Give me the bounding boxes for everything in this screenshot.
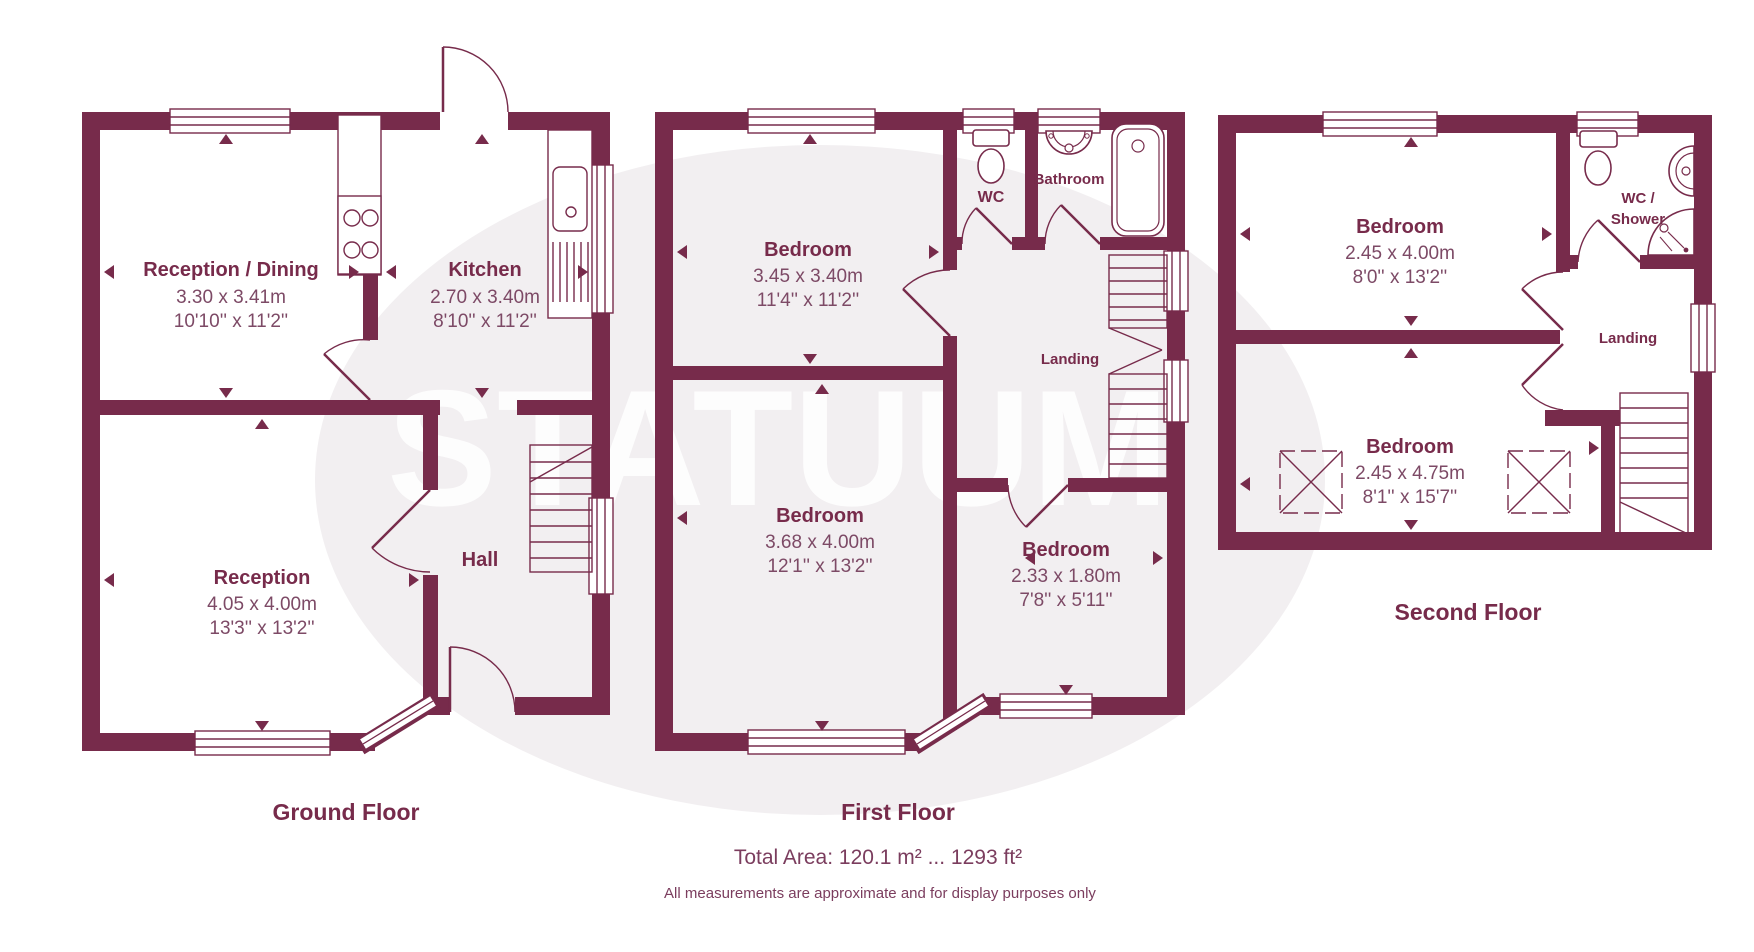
room-dim-imperial: 11'4'' x 11'2'' — [757, 290, 859, 311]
room-dim-metric: 3.68 x 4.00m — [765, 532, 875, 553]
room-label: Landing — [1041, 351, 1099, 368]
sink-icon — [548, 130, 592, 318]
window — [748, 109, 875, 133]
room-dim-metric: 2.45 x 4.75m — [1355, 463, 1465, 484]
room-dim-imperial: 7'8'' x 5'11'' — [1019, 590, 1112, 611]
room-label: Bathroom — [1034, 171, 1105, 188]
room-label: Bedroom — [764, 239, 852, 261]
room-label: Hall — [462, 549, 499, 571]
room-label: Bedroom — [1356, 216, 1444, 238]
door — [1522, 344, 1563, 410]
room-dim-imperial: 13'3'' x 13'2'' — [209, 618, 314, 639]
floorplan-canvas: STATUUM — [0, 0, 1754, 952]
room-dim-imperial: 8'0'' x 13'2'' — [1353, 267, 1448, 288]
window — [1691, 304, 1715, 372]
disclaimer-text: All measurements are approximate and for… — [664, 885, 1096, 902]
basin-icon — [1669, 146, 1694, 196]
room-label: Bedroom — [1022, 539, 1110, 561]
window — [195, 731, 330, 755]
room-label: WC / — [1621, 190, 1655, 207]
room-dim-imperial: 12'1'' x 13'2'' — [767, 556, 872, 577]
second-floor-doors — [1522, 220, 1640, 410]
room-dim-metric: 4.05 x 4.00m — [207, 594, 317, 615]
room-dim-metric: 3.45 x 3.40m — [753, 266, 863, 287]
toilet-icon — [1580, 131, 1617, 185]
stove-icon — [338, 115, 381, 275]
room-dim-metric: 3.30 x 3.41m — [176, 287, 286, 308]
window — [1323, 112, 1437, 136]
bay-window — [360, 700, 436, 747]
total-area-text: Total Area: 120.1 m² ... 1293 ft² — [734, 846, 1022, 869]
basin-icon — [1046, 131, 1092, 154]
room-dim-imperial: 8'10'' x 11'2'' — [433, 311, 537, 332]
floor-title: First Floor — [841, 799, 955, 825]
door — [443, 47, 508, 112]
floor-title: Ground Floor — [273, 799, 420, 825]
window — [1038, 109, 1100, 133]
window — [1000, 694, 1092, 718]
room-label: WC — [978, 189, 1005, 206]
room-label: Bedroom — [776, 505, 864, 527]
staircase — [1620, 393, 1688, 534]
room-label: Landing — [1599, 330, 1657, 347]
room-dim-imperial: 10'10'' x 11'2'' — [174, 311, 288, 332]
roof-window-icon — [1508, 451, 1570, 513]
room-label: Reception / Dining — [143, 259, 319, 281]
bathtub-icon — [1112, 124, 1164, 236]
door — [1522, 272, 1563, 330]
window — [748, 730, 905, 754]
room-dim-imperial: 8'1'' x 15'7'' — [1363, 487, 1458, 508]
room-label: Reception — [214, 567, 311, 589]
room-label: Shower — [1611, 211, 1665, 228]
room-dim-metric: 2.45 x 4.00m — [1345, 243, 1455, 264]
window — [170, 109, 290, 133]
room-label: Bedroom — [1366, 436, 1454, 458]
room-dim-metric: 2.33 x 1.80m — [1011, 566, 1121, 587]
floorplan-page: STATUUM — [0, 0, 1754, 952]
room-label: Kitchen — [448, 259, 521, 281]
room-dim-metric: 2.70 x 3.40m — [430, 287, 540, 308]
floor-title: Second Floor — [1395, 599, 1542, 625]
